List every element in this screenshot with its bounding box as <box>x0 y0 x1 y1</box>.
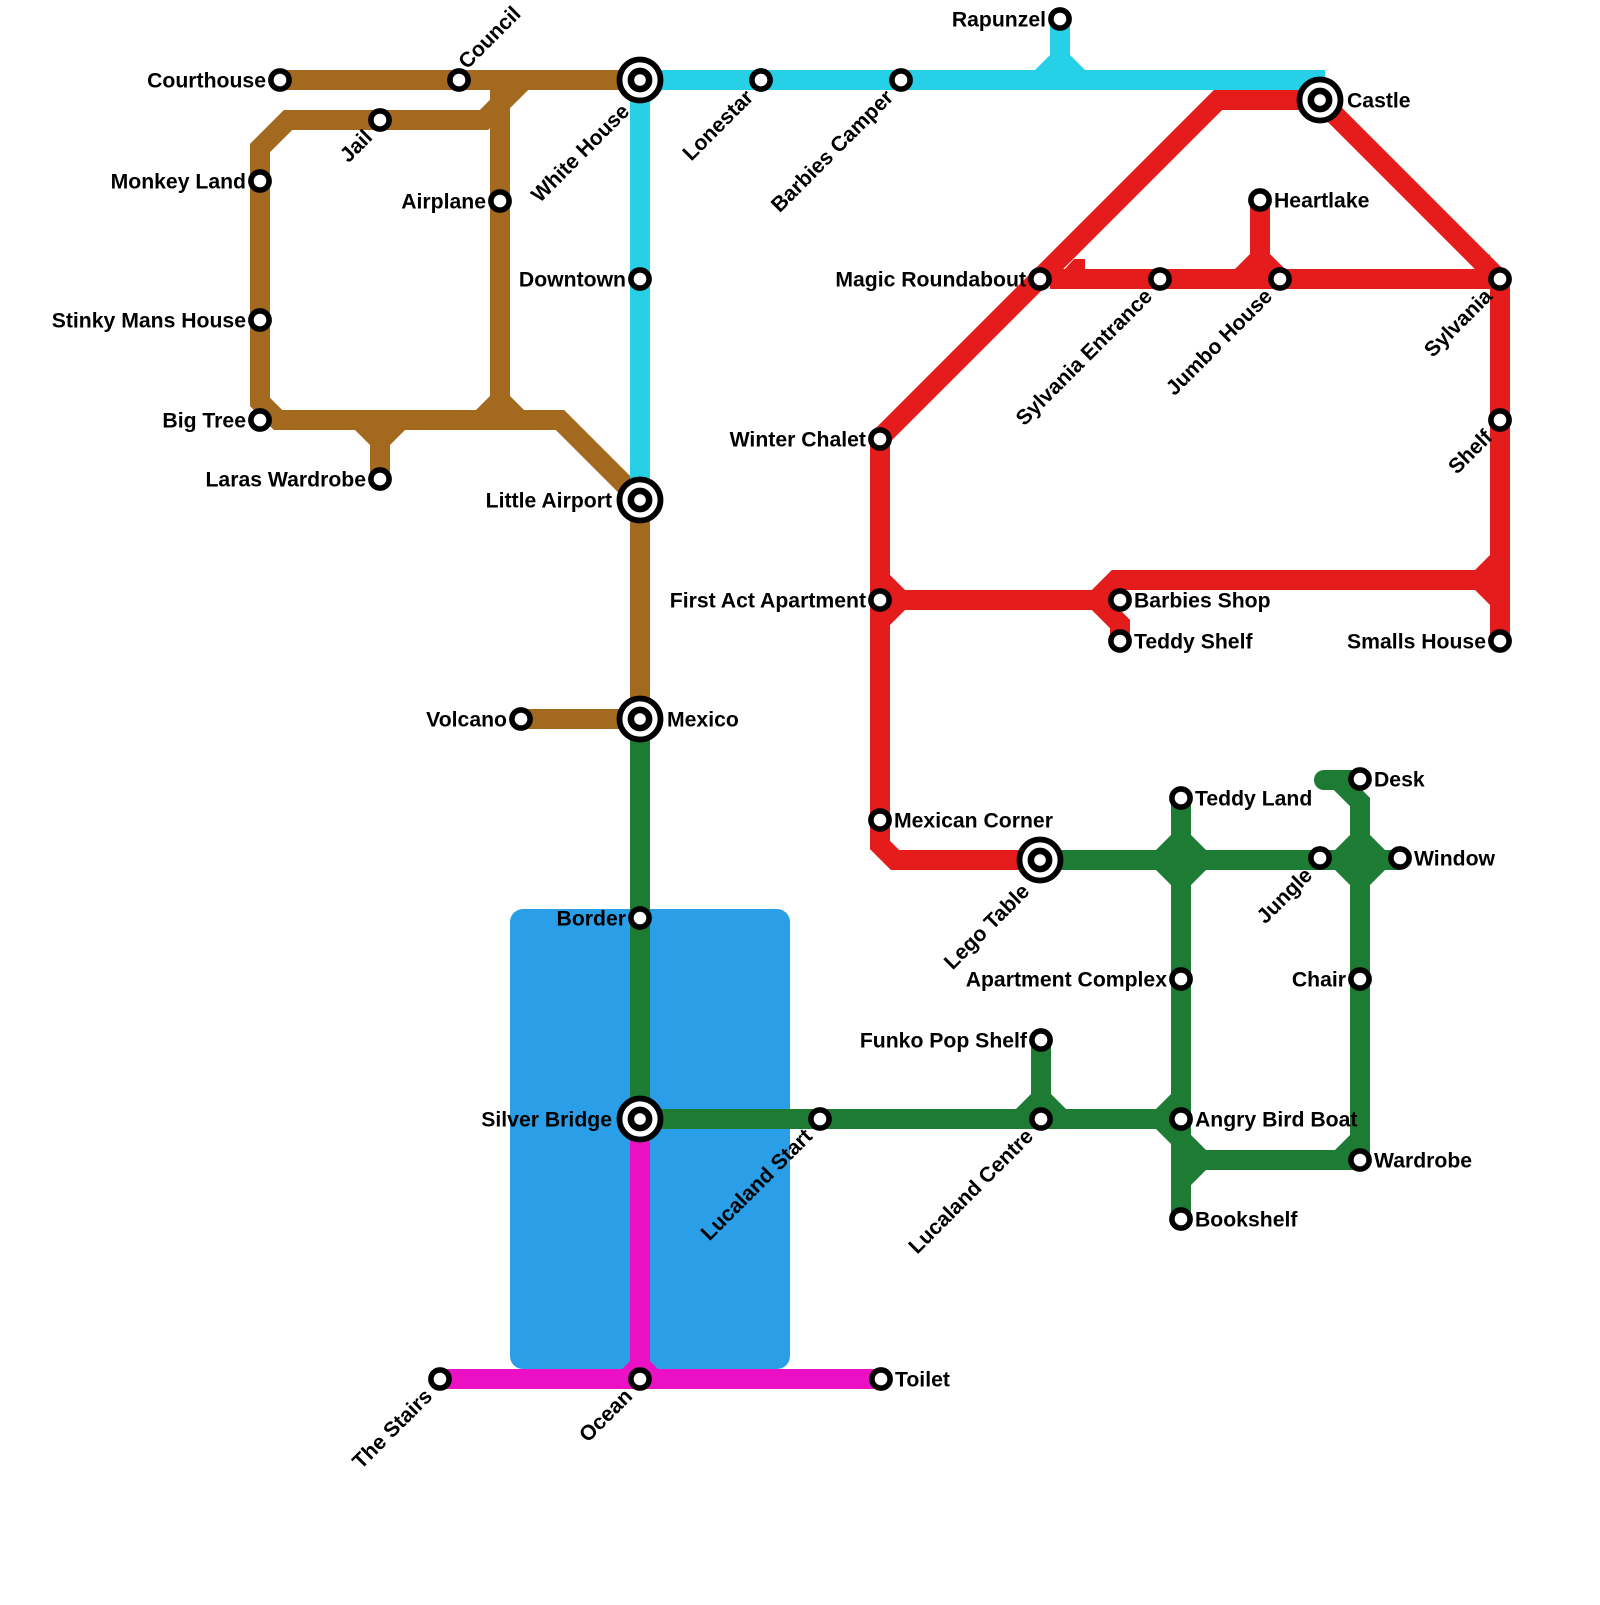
svg-text:Magic Roundabout: Magic Roundabout <box>835 269 1026 292</box>
svg-text:First Act Apartment: First Act Apartment <box>670 590 866 613</box>
svg-text:Toilet: Toilet <box>895 1369 950 1392</box>
svg-text:Barbies Shop: Barbies Shop <box>1134 590 1271 613</box>
svg-text:Mexico: Mexico <box>667 709 739 732</box>
svg-text:Little Airport: Little Airport <box>486 490 612 513</box>
svg-text:Angry Bird Boat: Angry Bird Boat <box>1195 1109 1357 1132</box>
svg-text:Rapunzel: Rapunzel <box>952 9 1046 32</box>
svg-text:Courthouse: Courthouse <box>147 70 266 93</box>
svg-text:Airplane: Airplane <box>401 191 486 214</box>
svg-text:Downtown: Downtown <box>519 269 626 292</box>
svg-text:Desk: Desk <box>1374 769 1425 792</box>
svg-text:Wardrobe: Wardrobe <box>1374 1150 1472 1173</box>
svg-text:Stinky Mans House: Stinky Mans House <box>52 310 246 333</box>
svg-text:Teddy Shelf: Teddy Shelf <box>1134 631 1253 654</box>
svg-text:Window: Window <box>1414 848 1496 871</box>
svg-text:Bookshelf: Bookshelf <box>1195 1209 1298 1232</box>
svg-text:Monkey Land: Monkey Land <box>111 171 246 194</box>
svg-text:Border: Border <box>557 908 626 931</box>
svg-text:Apartment Complex: Apartment Complex <box>966 969 1168 992</box>
svg-text:Castle: Castle <box>1347 90 1411 113</box>
svg-text:Funko Pop Shelf: Funko Pop Shelf <box>860 1030 1028 1053</box>
svg-text:Winter Chalet: Winter Chalet <box>730 429 866 452</box>
svg-text:Volcano: Volcano <box>426 709 507 732</box>
svg-text:Teddy Land: Teddy Land <box>1195 788 1312 811</box>
svg-text:Smalls House: Smalls House <box>1347 631 1486 654</box>
svg-text:Chair: Chair <box>1292 969 1346 992</box>
svg-text:Heartlake: Heartlake <box>1274 190 1370 213</box>
svg-text:Laras Wardrobe: Laras Wardrobe <box>205 469 366 492</box>
svg-text:Silver Bridge: Silver Bridge <box>481 1109 612 1132</box>
svg-text:Big Tree: Big Tree <box>162 410 246 433</box>
svg-text:Mexican Corner: Mexican Corner <box>894 810 1053 833</box>
